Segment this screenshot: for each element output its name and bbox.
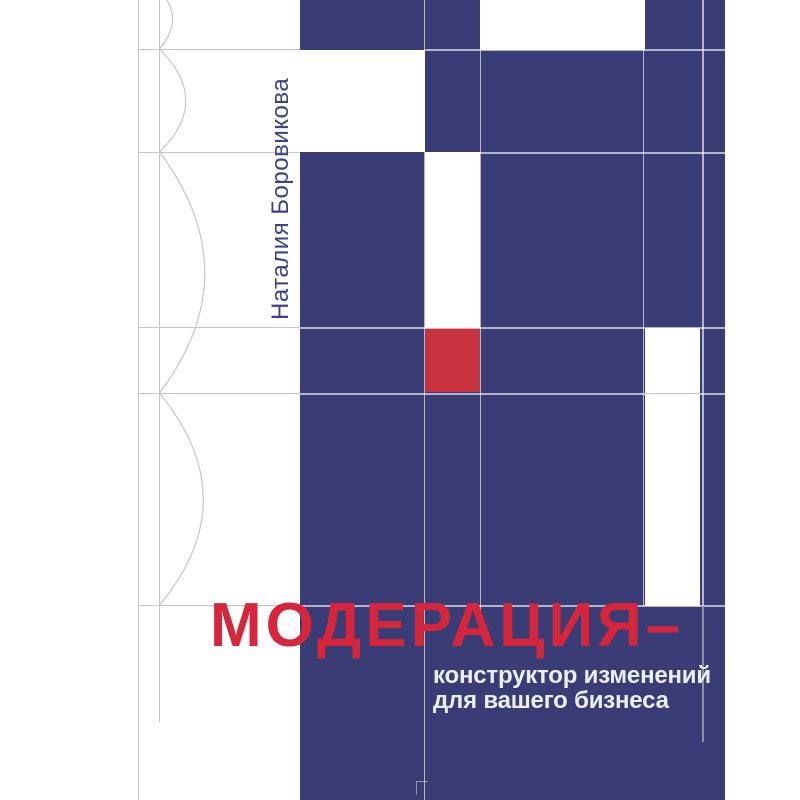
book-title: МОДЕРАЦИЯ– — [210, 595, 684, 657]
grid-line — [700, 393, 725, 395]
grid-line — [425, 152, 725, 154]
subtitle-line-2: для вашего бизнеса — [433, 688, 711, 713]
grid-line — [645, 393, 700, 394]
navy-block-left-column — [300, 152, 425, 800]
book-cover: Наталия Боровикова МОДЕРАЦИЯ– конструкто… — [0, 0, 800, 800]
grid-line — [643, 0, 644, 606]
grid-line — [300, 393, 645, 395]
author-name: Наталия Боровикова — [266, 88, 296, 320]
navy-block-top-a — [300, 0, 425, 50]
watermark-corner-icon — [416, 781, 428, 795]
red-accent-square — [425, 328, 480, 392]
book-subtitle: конструктор изменений для вашего бизнеса — [433, 663, 711, 713]
navy-block-top-b — [425, 0, 480, 152]
grid-line — [425, 49, 725, 51]
grid-line — [300, 327, 725, 329]
grid-line — [480, 0, 481, 630]
subtitle-line-1: конструктор изменений — [433, 663, 711, 688]
grid-line — [702, 0, 704, 606]
grid-line — [424, 0, 426, 800]
